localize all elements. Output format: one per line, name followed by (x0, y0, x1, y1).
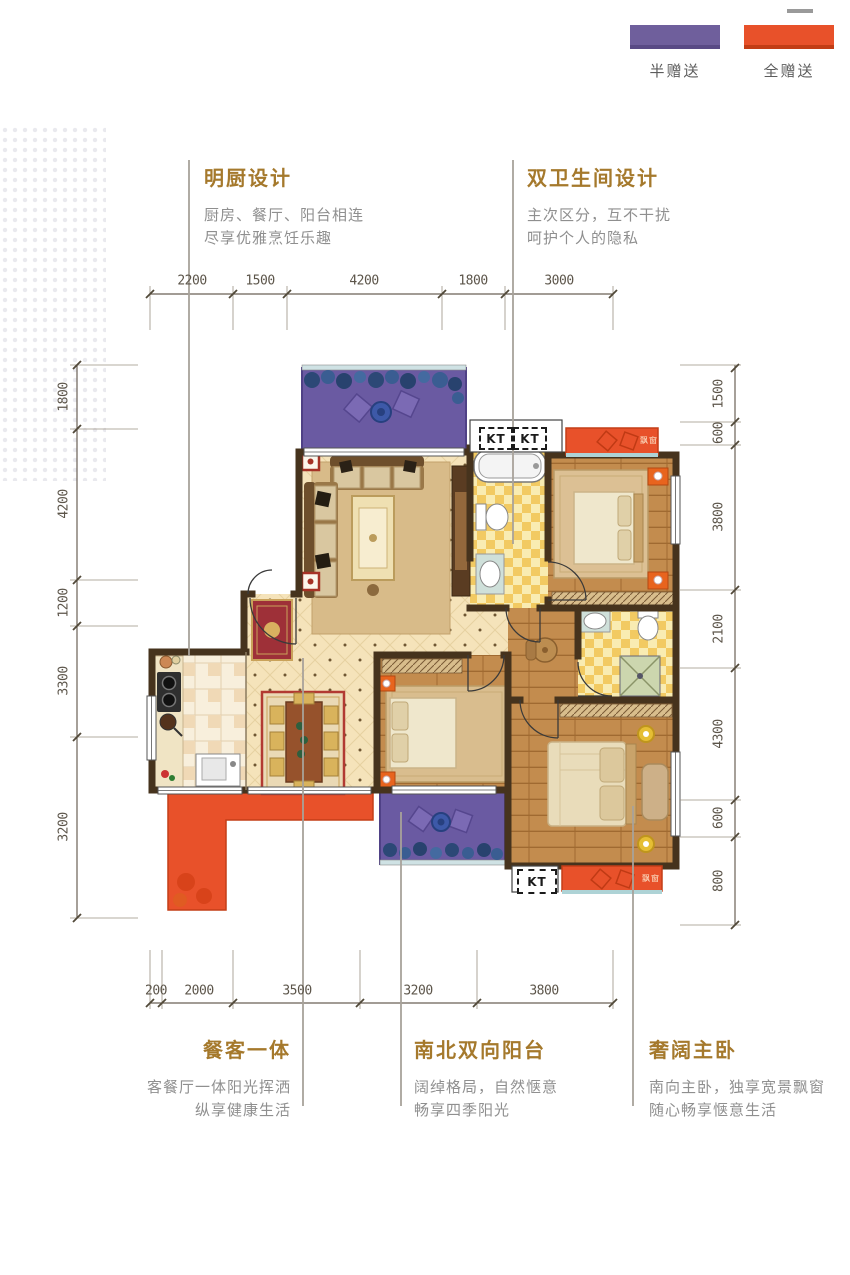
kt-label-3: KT (517, 869, 557, 894)
feature-kitchen: 明厨设计 厨房、餐厅、阳台相连 尽享优雅烹饪乐趣 (204, 162, 364, 250)
feature-balconies-line2: 畅享四季阳光 (414, 1099, 558, 1122)
dim-right-5: 600 (712, 807, 727, 829)
bay-window-label-south: 飘窗 (642, 873, 660, 884)
kt-label-1: KT (479, 427, 513, 450)
feature-master-bedroom: 奢阔主卧 南向主卧，独享宽景飘窗 随心畅享惬意生活 (649, 1034, 825, 1122)
dim-right-0: 1500 (712, 379, 727, 408)
feature-bathrooms-line1: 主次区分，互不干扰 (527, 204, 671, 227)
floor-plan-page: 半赠送 全赠送 (0, 0, 850, 1275)
dim-right-4: 4300 (712, 719, 727, 748)
bay-window-label-north: 飘窗 (640, 435, 658, 446)
dim-left-0: 1800 (57, 382, 72, 411)
feature-master-bedroom-line2: 随心畅享惬意生活 (649, 1099, 825, 1122)
dim-top-4: 3000 (544, 274, 573, 289)
feature-kitchen-title: 明厨设计 (204, 162, 364, 191)
feature-dining-living: 餐客一体 客餐厅一体阳光挥洒 纵享健康生活 (105, 1034, 291, 1122)
feature-kitchen-line1: 厨房、餐厅、阳台相连 (204, 204, 364, 227)
dim-left-3: 3300 (57, 666, 72, 695)
dim-left-4: 3200 (57, 812, 72, 841)
balcony-north (302, 365, 466, 452)
feature-kitchen-line2: 尽享优雅烹饪乐趣 (204, 227, 364, 250)
living-room (302, 453, 470, 634)
dim-right-6: 800 (712, 870, 727, 892)
feature-master-bedroom-line1: 南向主卧，独享宽景飘窗 (649, 1076, 825, 1099)
feature-dining-living-line2: 纵享健康生活 (105, 1099, 291, 1122)
dim-top-2: 4200 (349, 274, 378, 289)
dim-bottom-3: 3200 (403, 984, 432, 999)
dim-top-0: 2200 (177, 274, 206, 289)
feature-balconies: 南北双向阳台 阔绰格局，自然惬意 畅享四季阳光 (414, 1034, 558, 1122)
balcony-south (380, 790, 505, 865)
dim-bottom-1: 2000 (184, 984, 213, 999)
dim-left-2: 1200 (57, 588, 72, 617)
feature-bathrooms-line2: 呵护个人的隐私 (527, 227, 671, 250)
corridor-table (526, 638, 557, 662)
dim-bottom-2: 3500 (282, 984, 311, 999)
dim-bottom-4: 3800 (529, 984, 558, 999)
dim-top-1: 1500 (245, 274, 274, 289)
dim-bottom-0: 200 (145, 984, 167, 999)
feature-bathrooms: 双卫生间设计 主次区分，互不干扰 呵护个人的隐私 (527, 162, 671, 250)
dim-left-1: 4200 (57, 489, 72, 518)
kt-label-2: KT (513, 427, 547, 450)
dim-right-1: 600 (712, 422, 727, 444)
feature-dining-living-line1: 客餐厅一体阳光挥洒 (105, 1076, 291, 1099)
feature-balconies-title: 南北双向阳台 (414, 1034, 558, 1063)
feature-bathrooms-title: 双卫生间设计 (527, 162, 671, 191)
dim-right-3: 2100 (712, 614, 727, 643)
dim-right-2: 3800 (712, 502, 727, 531)
feature-dining-living-title: 餐客一体 (105, 1034, 291, 1063)
dim-top-3: 1800 (458, 274, 487, 289)
feature-balconies-line1: 阔绰格局，自然惬意 (414, 1076, 558, 1099)
feature-master-bedroom-title: 奢阔主卧 (649, 1034, 825, 1063)
